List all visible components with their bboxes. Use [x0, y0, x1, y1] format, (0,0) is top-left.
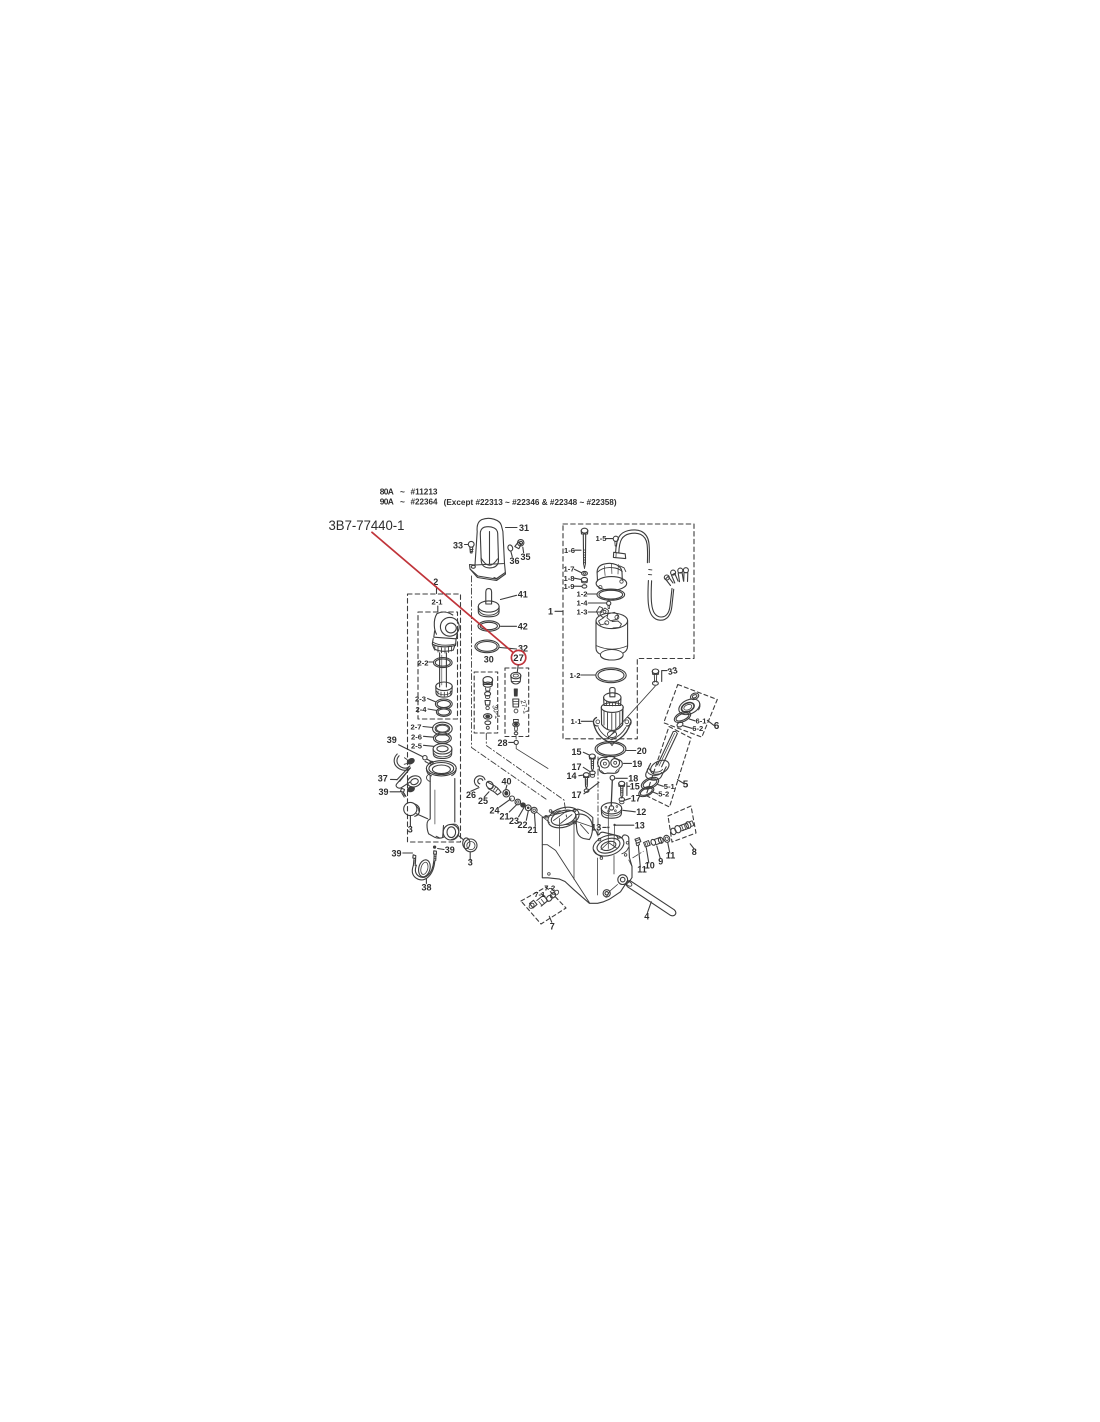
svg-text:27-1: 27-1: [519, 699, 529, 714]
svg-text:40: 40: [502, 777, 512, 787]
svg-text:19: 19: [632, 759, 642, 769]
svg-text:1-5: 1-5: [596, 534, 608, 543]
svg-text:17: 17: [572, 790, 582, 800]
svg-text:2-3: 2-3: [415, 694, 426, 703]
svg-text:12: 12: [636, 807, 646, 817]
svg-text:1-9: 1-9: [564, 582, 575, 591]
svg-text:80A: 80A: [380, 487, 394, 497]
svg-text:10: 10: [645, 860, 655, 870]
svg-text:2-4: 2-4: [416, 705, 428, 714]
svg-text:1-7: 1-7: [564, 565, 575, 574]
svg-text:1-4: 1-4: [577, 599, 589, 608]
svg-text:24: 24: [490, 805, 500, 815]
svg-text:5-2: 5-2: [658, 790, 669, 799]
svg-text:35: 35: [521, 552, 531, 562]
svg-text:#11213: #11213: [411, 487, 438, 497]
svg-text:30: 30: [484, 654, 494, 664]
svg-text:33: 33: [453, 540, 463, 550]
svg-text:39: 39: [387, 735, 397, 745]
svg-text:15: 15: [572, 747, 582, 757]
svg-text:2-5: 2-5: [411, 742, 423, 751]
svg-text:26: 26: [466, 790, 476, 800]
svg-text:42: 42: [518, 621, 528, 631]
svg-text:1-3: 1-3: [577, 608, 588, 617]
svg-text:2-2: 2-2: [418, 658, 429, 667]
svg-text:~: ~: [400, 487, 405, 497]
svg-text:25: 25: [478, 796, 488, 806]
svg-text:27: 27: [513, 653, 524, 664]
svg-text:39: 39: [445, 845, 455, 855]
svg-text:15: 15: [630, 781, 640, 791]
svg-text:3: 3: [408, 825, 413, 835]
svg-text:1-1: 1-1: [571, 717, 583, 726]
svg-text:39: 39: [392, 848, 402, 858]
svg-text:13: 13: [635, 821, 645, 831]
svg-text:2-7: 2-7: [411, 723, 422, 732]
svg-text:~: ~: [400, 497, 405, 507]
svg-text:3B7-77440-1: 3B7-77440-1: [329, 518, 405, 533]
svg-text:2-1: 2-1: [432, 597, 444, 606]
svg-text:7-2: 7-2: [544, 883, 555, 892]
svg-text:36: 36: [510, 556, 520, 566]
svg-text:6: 6: [714, 721, 720, 732]
svg-text:1-2: 1-2: [577, 590, 588, 599]
svg-text:11: 11: [666, 850, 676, 860]
svg-text:#22364: #22364: [411, 497, 438, 507]
svg-text:39: 39: [379, 787, 389, 797]
svg-text:9: 9: [658, 856, 663, 866]
svg-text:1-6: 1-6: [564, 546, 575, 555]
svg-text:28: 28: [498, 738, 508, 748]
svg-text:33: 33: [666, 665, 678, 677]
svg-text:41: 41: [518, 590, 528, 600]
svg-text:31: 31: [519, 523, 529, 533]
svg-text:7: 7: [550, 922, 555, 932]
svg-text:3: 3: [468, 858, 473, 868]
svg-text:20: 20: [637, 746, 647, 756]
svg-text:14: 14: [567, 771, 577, 781]
svg-text:(Except #22313 ~ #22346 & #223: (Except #22313 ~ #22346 & #22348 ~ #2235…: [444, 497, 617, 507]
svg-text:90A: 90A: [380, 497, 394, 507]
svg-text:8: 8: [692, 847, 697, 857]
svg-text:2-6: 2-6: [411, 733, 422, 742]
svg-text:21: 21: [528, 825, 538, 835]
svg-text:4: 4: [644, 911, 649, 921]
svg-text:6-2: 6-2: [692, 724, 703, 733]
svg-text:1: 1: [548, 607, 553, 617]
svg-text:1-2: 1-2: [570, 671, 581, 680]
svg-text:22: 22: [518, 820, 528, 830]
svg-text:5: 5: [683, 779, 689, 790]
svg-text:37: 37: [378, 773, 388, 783]
svg-text:38: 38: [422, 883, 432, 893]
svg-text:21: 21: [500, 811, 510, 821]
